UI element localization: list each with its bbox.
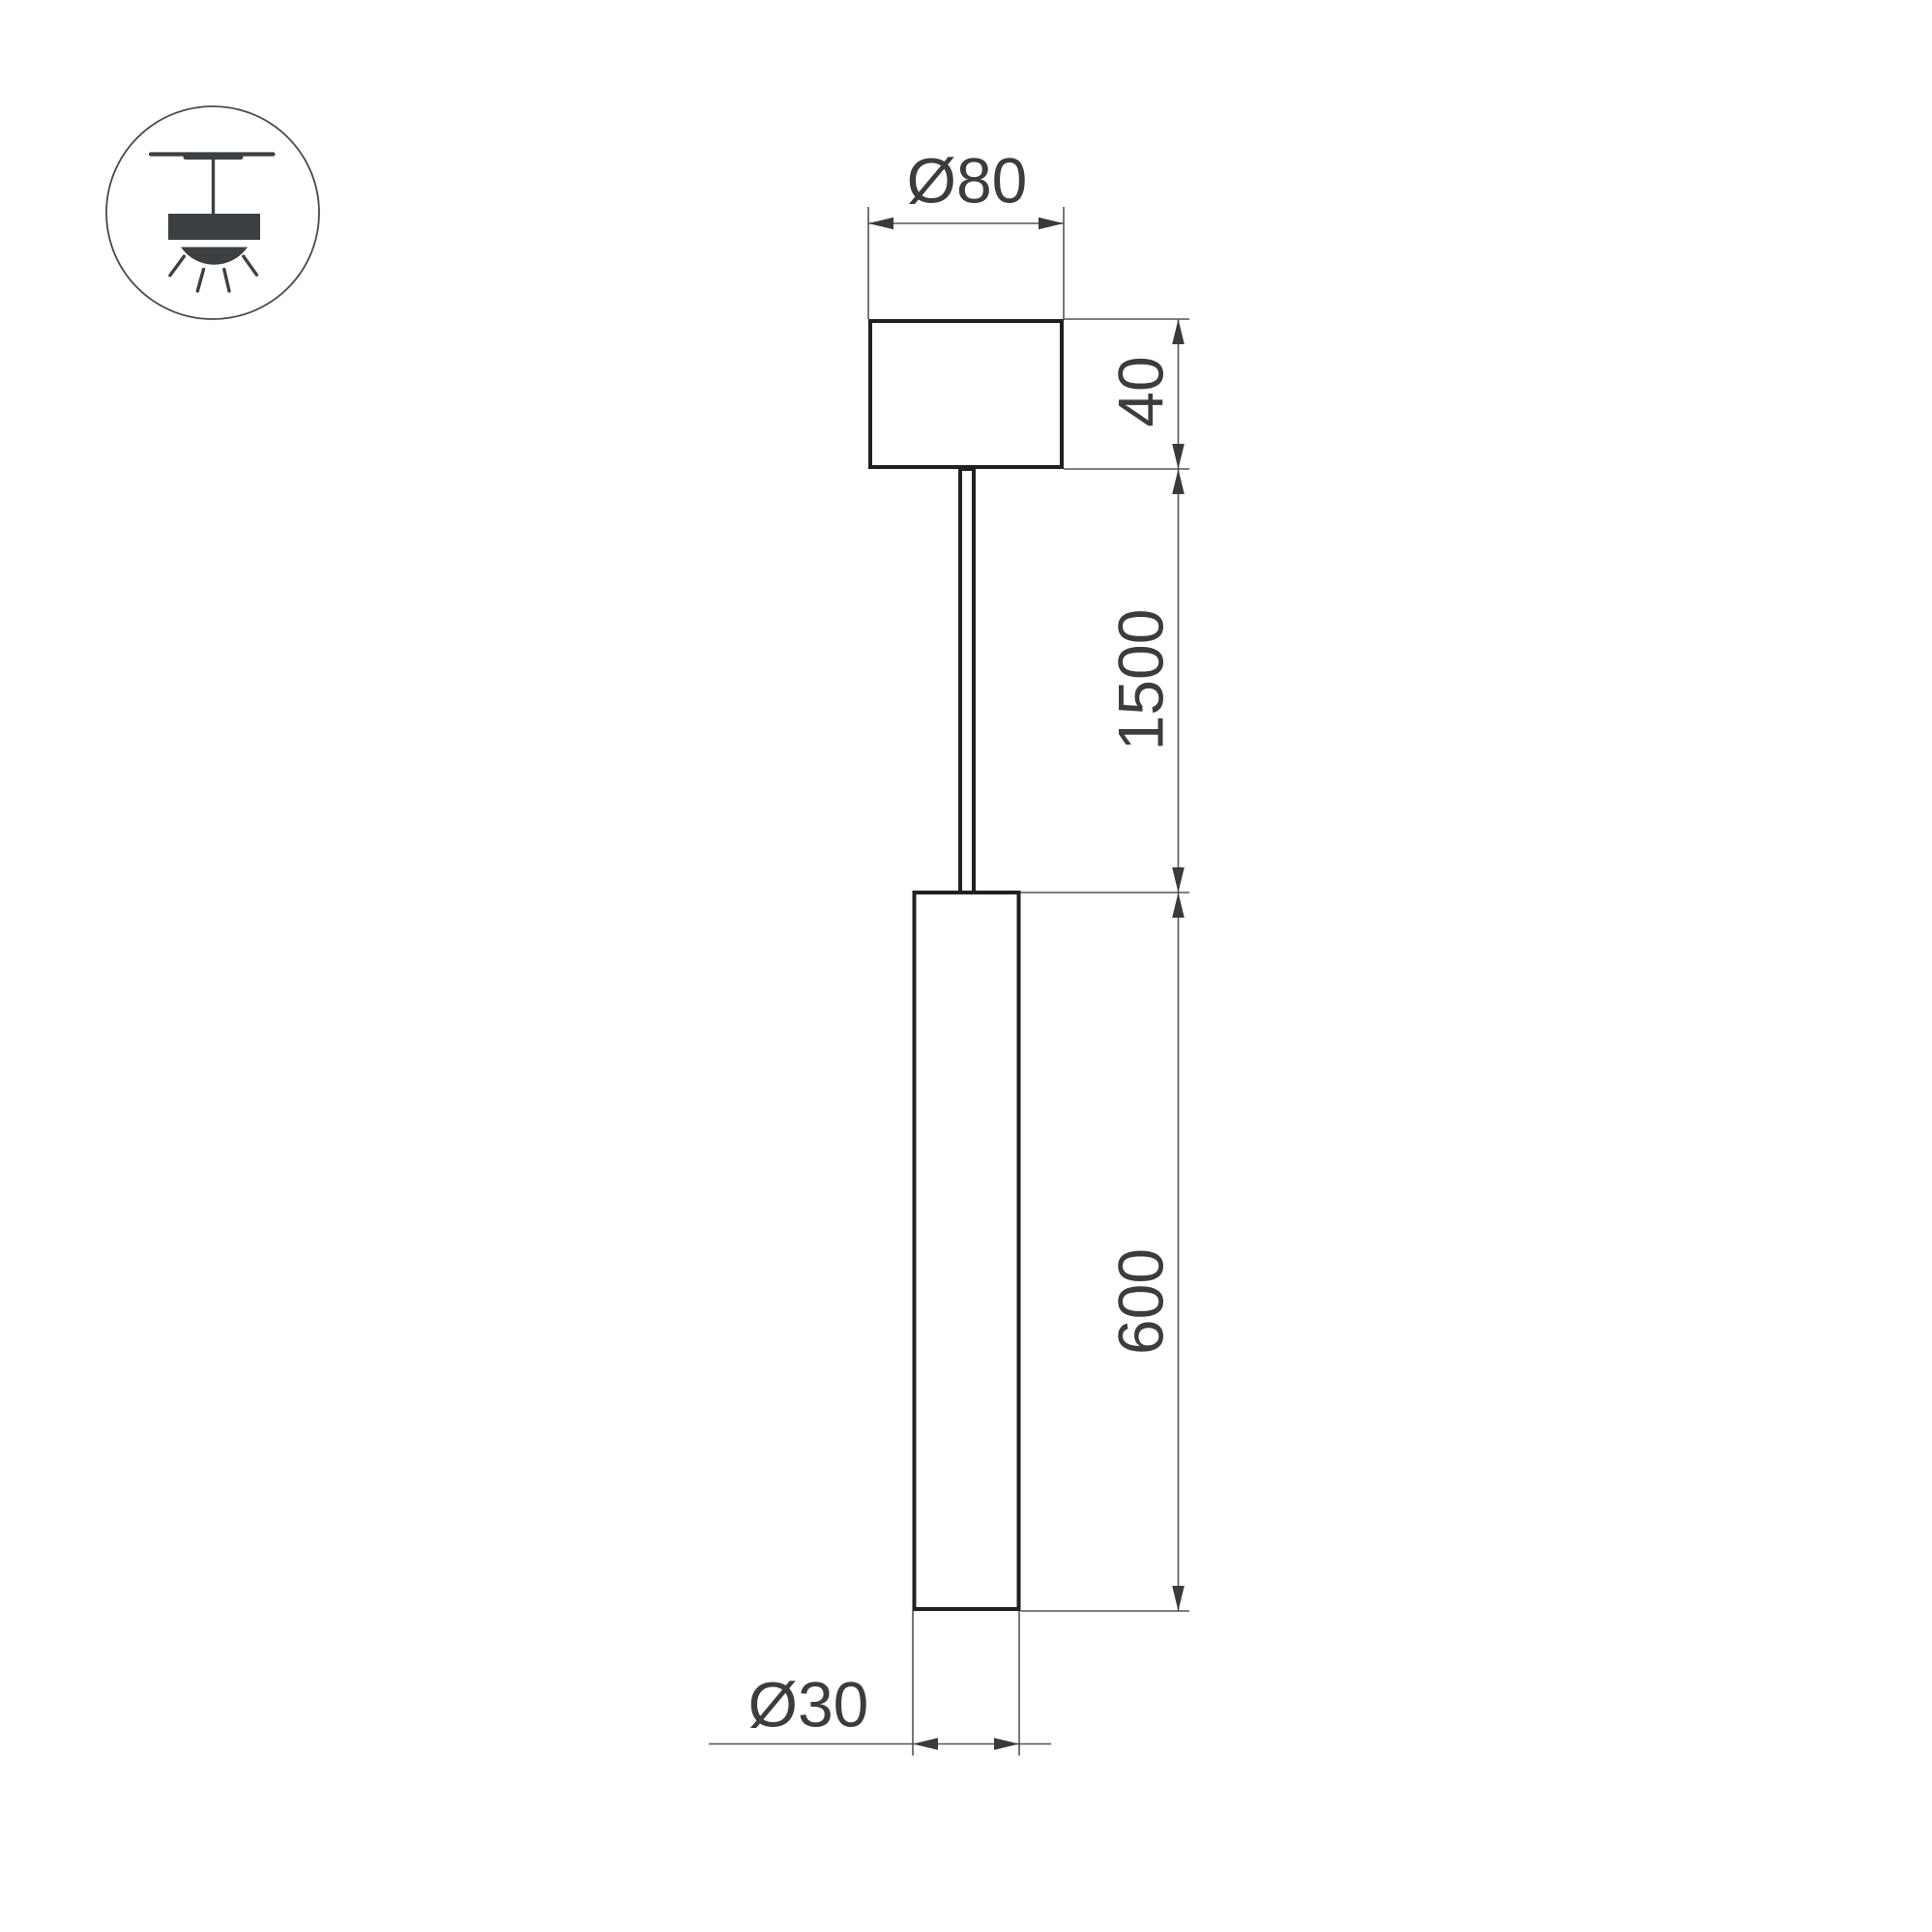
svg-text:Ø30: Ø30 [748,1669,869,1741]
svg-text:1500: 1500 [1105,609,1177,751]
svg-text:600: 600 [1105,1248,1177,1355]
svg-text:Ø80: Ø80 [907,145,1028,217]
svg-text:40: 40 [1105,356,1177,426]
